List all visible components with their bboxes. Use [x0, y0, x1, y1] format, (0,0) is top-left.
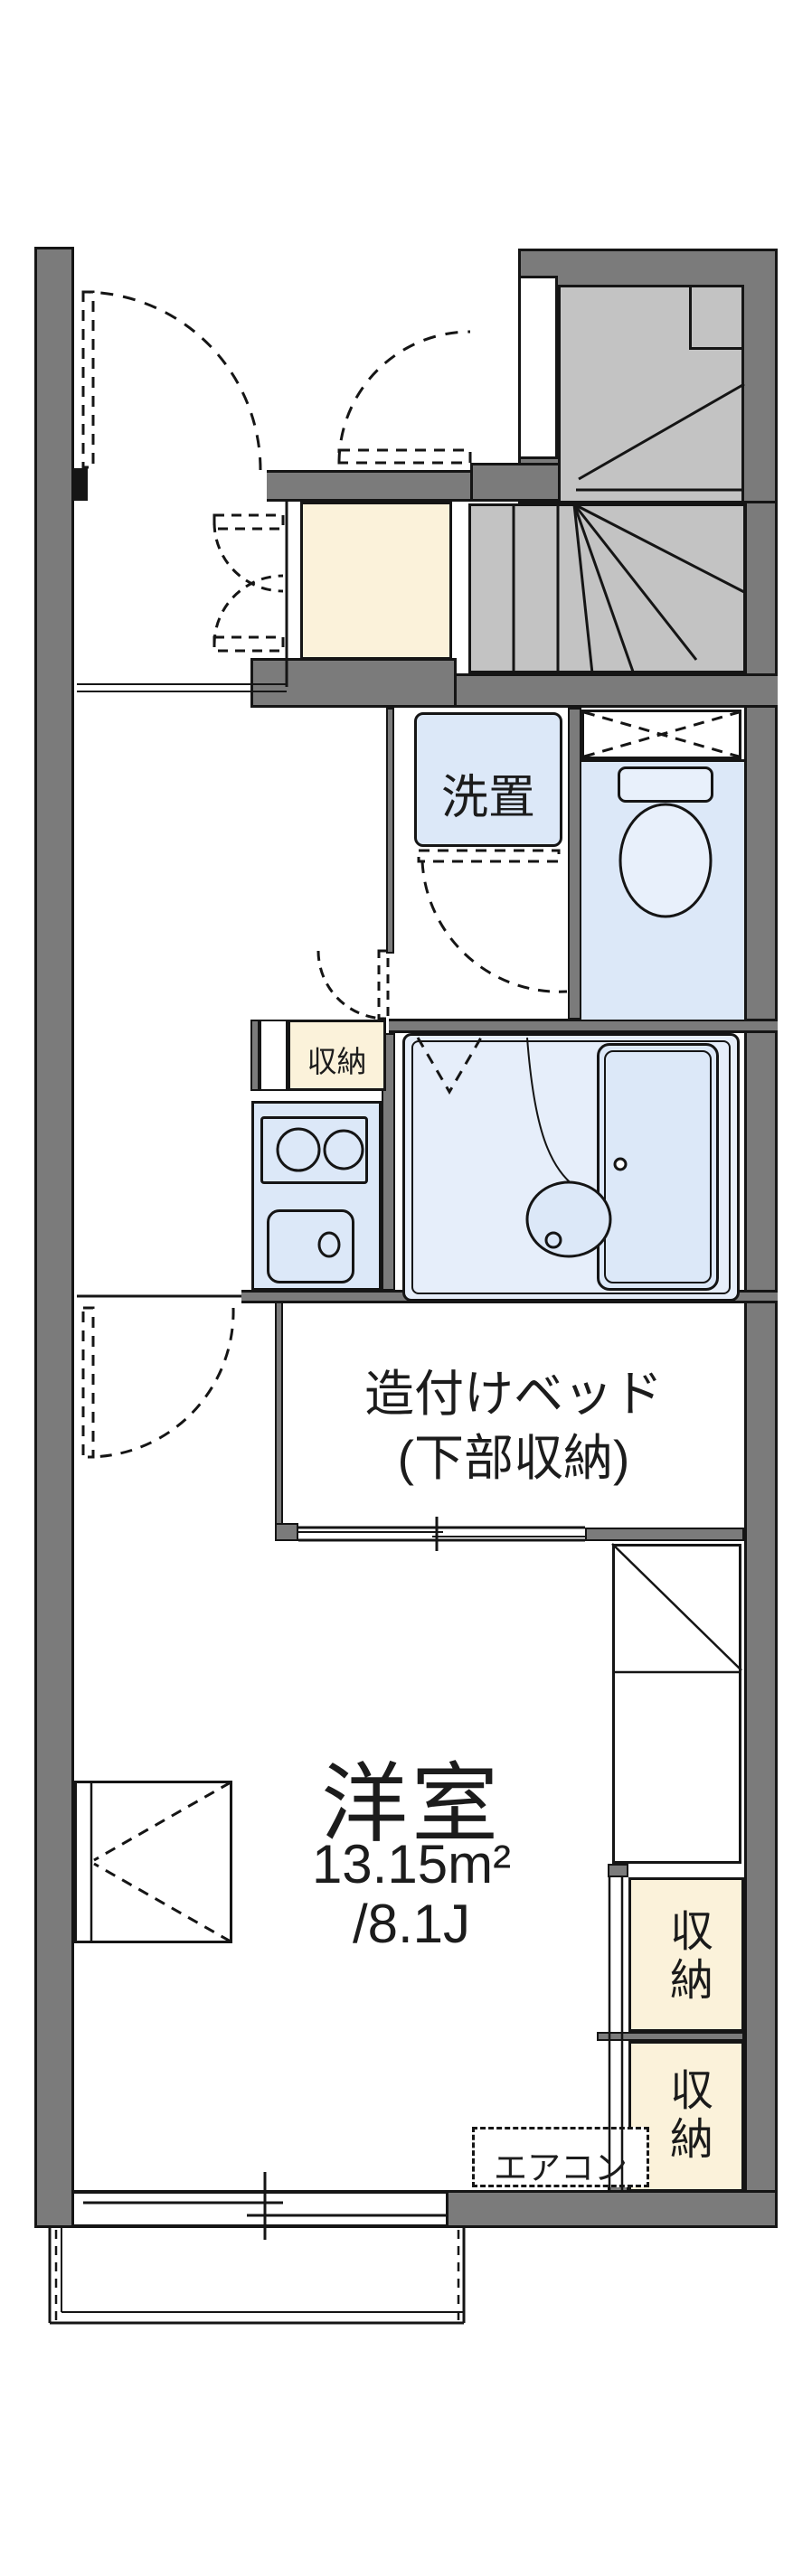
room-tatami-label: /8.1J	[231, 1893, 592, 1955]
fridge-bottom-stub	[608, 1864, 628, 1877]
double-door-leaf-top	[214, 515, 283, 529]
room-door-arc	[88, 1308, 233, 1457]
kitchen-stove	[260, 1116, 368, 1184]
storage-mid-door-arc	[318, 951, 386, 1019]
bathtub-inner-line	[604, 1050, 712, 1283]
double-door-leaf-bottom	[214, 637, 283, 651]
bed-bottom-left-stub	[275, 1523, 298, 1541]
porch-bottom-wall	[267, 470, 470, 502]
closet-bottom-label: 収納	[655, 2067, 718, 2165]
porch-left-stub	[72, 468, 88, 501]
bottom-window-band	[74, 2190, 446, 2228]
storage-mid-door-leaf	[379, 951, 388, 1019]
room-area-label: 13.15m²	[231, 1833, 592, 1895]
right-outer-wall	[744, 249, 778, 2228]
bed-label-line2: (下部収納)	[333, 1417, 694, 1490]
closet-top-label: 収納	[655, 1908, 718, 2006]
washroom-toilet-divider	[568, 708, 581, 1020]
washroom-left-wall	[386, 708, 394, 954]
entry-door-arc	[339, 332, 470, 463]
stairs-upper-landing	[689, 285, 744, 350]
porch-door-leaf	[83, 292, 93, 467]
stairs-top-opening	[518, 276, 558, 459]
porch-door-arc	[88, 292, 260, 470]
bottom-right-wall	[446, 2190, 778, 2228]
aircon-label: エアコン	[472, 2140, 649, 2189]
double-door-arc-bottom	[214, 576, 283, 644]
left-room-partition	[77, 683, 287, 692]
kitchen-sink	[267, 1209, 354, 1283]
refrigerator-space	[612, 1544, 741, 1864]
sanitary-bottom-wall	[389, 1019, 778, 1033]
room-door-leaf	[83, 1308, 93, 1457]
closet-divider-wall	[597, 2032, 744, 2041]
genkan-floor	[300, 502, 452, 660]
bed-bottom-right-wall	[585, 1528, 744, 1541]
washroom-door-arc	[422, 861, 567, 992]
floor-plan: 洗置 収納 造付けベッド (下部収納) 洋室 13.15m² /8.1J 収納 …	[0, 0, 812, 2576]
washroom-door-leaf	[419, 851, 559, 861]
storage-mid-door	[260, 1020, 288, 1091]
bed-left-wall	[275, 1302, 283, 1528]
stairs-lower-panel	[468, 503, 746, 673]
storage-mid-label: 収納	[288, 1038, 386, 1081]
toilet-tank	[618, 766, 713, 803]
closet-top-label-wrap: 収納	[628, 1889, 744, 2025]
entry-door-leaf	[339, 450, 470, 463]
left-outer-wall	[34, 247, 74, 2228]
bed-label-line1: 造付けベッド	[333, 1353, 694, 1425]
stair-bottom-wall	[457, 673, 778, 708]
toilet-window-box	[581, 710, 741, 759]
storage-mid-left-stub	[250, 1020, 260, 1091]
washer-label: 洗置	[414, 759, 562, 827]
bay-window-box	[74, 1781, 232, 1943]
double-door-arc-top	[214, 522, 283, 591]
